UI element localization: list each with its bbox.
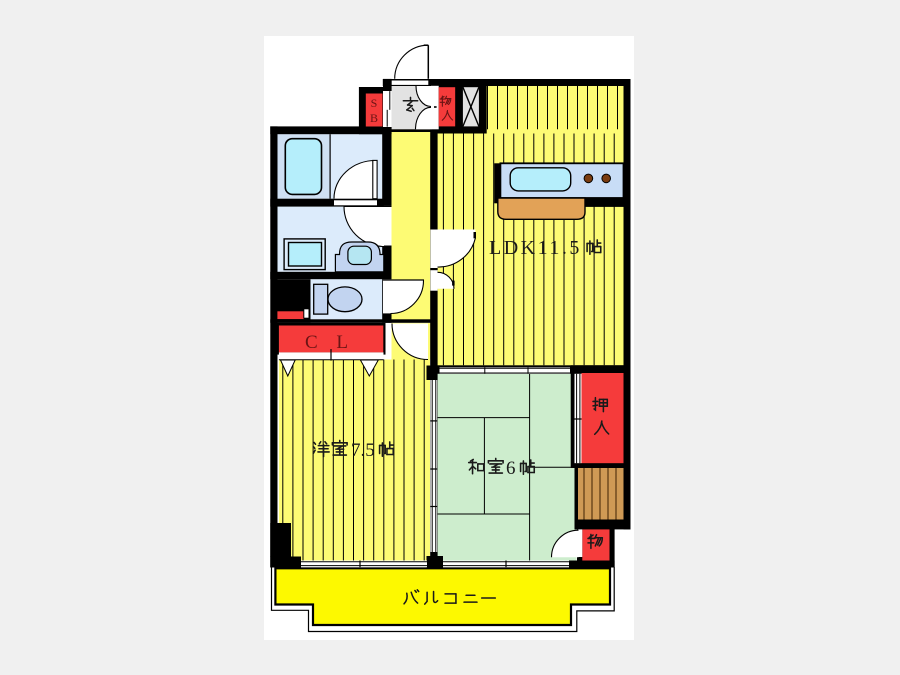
svg-text:B: B — [370, 111, 378, 125]
svg-text:S: S — [371, 96, 378, 110]
svg-text:7.5: 7.5 — [351, 440, 375, 461]
svg-text:LDK11.5: LDK11.5 — [489, 237, 582, 259]
svg-text:C L: C L — [305, 332, 355, 353]
svg-text:6: 6 — [506, 458, 516, 479]
